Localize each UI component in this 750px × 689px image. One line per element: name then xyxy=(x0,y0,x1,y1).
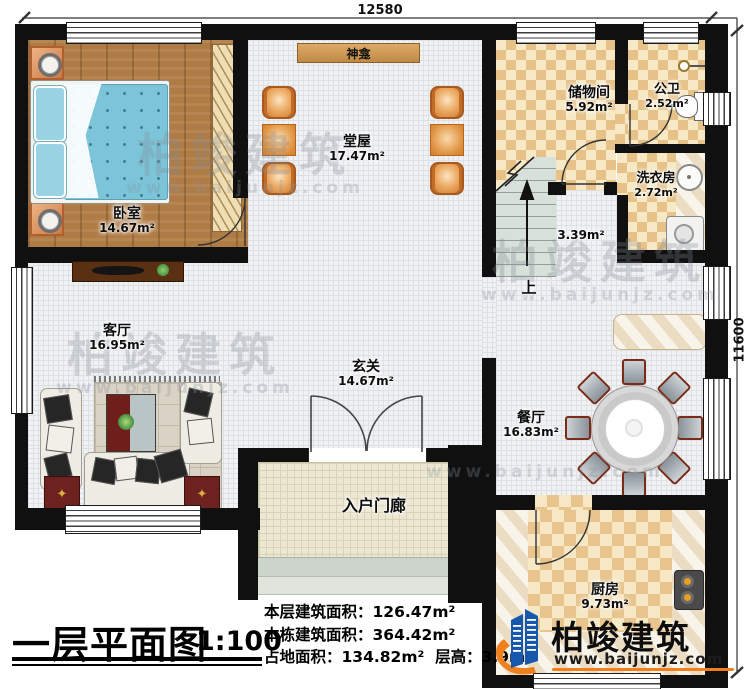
dimension-top: 12580 xyxy=(357,3,402,18)
room-label-foyer: 玄关 14.67m² xyxy=(338,359,394,389)
wall-porch-left xyxy=(238,448,258,600)
wall-dining-kitchen-stub xyxy=(496,495,535,510)
wall-bedroom-right xyxy=(233,24,248,198)
wall-laundry-bottom xyxy=(617,250,710,263)
room-label-bedroom: 卧室 14.67m² xyxy=(99,206,155,236)
window-dining-right-lower xyxy=(703,378,731,480)
window-dining-right-upper xyxy=(703,266,731,320)
stairs-area-label: 3.39m² xyxy=(557,229,604,243)
room-label-laundry: 洗衣房 2.72m² xyxy=(634,172,677,200)
storage-floor xyxy=(496,40,616,190)
wall-bath-laundry-divider xyxy=(615,144,706,153)
sofa-cushion xyxy=(187,418,214,445)
bath-door-gap-floor xyxy=(615,104,628,145)
brand-underline xyxy=(552,668,734,671)
hall-chair xyxy=(262,86,296,119)
lamp-icon xyxy=(38,53,62,77)
room-label-hall: 堂屋 17.47m² xyxy=(329,134,385,164)
sofa-cushion xyxy=(43,394,73,424)
room-label-living: 客厅 16.95m² xyxy=(89,323,145,353)
title-underline-thick xyxy=(12,657,262,661)
bed-pillow xyxy=(34,142,66,198)
dining-chair xyxy=(622,471,646,497)
wall-laundry-left xyxy=(617,195,628,252)
window-storage-top xyxy=(516,22,596,44)
stat-line: 占地面积：134.82m² 层高：3.9m xyxy=(264,646,525,669)
hall-chair xyxy=(430,86,464,119)
stairs-up-label: 上 xyxy=(521,279,536,296)
porch-step-2 xyxy=(256,576,454,595)
shrine-cabinet: 神龛 xyxy=(297,43,420,63)
plant-icon xyxy=(157,264,169,276)
corridor-gap-floor xyxy=(482,277,496,358)
wall-storage-bottom-stub xyxy=(604,182,617,195)
room-label-storage: 储物间 5.92m² xyxy=(565,85,612,115)
faucet-stem xyxy=(690,65,705,67)
stat-line: 本层建筑面积：126.47m² xyxy=(264,601,525,624)
room-label-porch: 入户门廊 xyxy=(342,497,406,515)
room-label-dining: 餐厅 16.83m² xyxy=(503,410,559,440)
dining-chair xyxy=(622,359,646,385)
wall-center-upper xyxy=(482,24,496,277)
dining-table-hub xyxy=(625,419,643,437)
room-label-bath: 公卫 2.52m² xyxy=(645,83,688,111)
wall-storage-bottom-stub xyxy=(548,182,566,195)
dining-sideboard xyxy=(613,314,707,350)
tv-icon xyxy=(92,266,144,275)
faucet-icon xyxy=(678,60,690,72)
star-icon: ✦ xyxy=(57,488,68,501)
wall-dining-kitchen-stub xyxy=(592,495,706,510)
window-living-left xyxy=(11,267,33,414)
window-living-bottom xyxy=(65,505,201,534)
area-statistics: 本层建筑面积：126.47m² 本栋建筑面积：364.42m² 占地面积：134… xyxy=(264,601,525,669)
sofa-cushion xyxy=(46,425,75,454)
title-underline-thin xyxy=(12,664,262,666)
window-kitchen-bottom xyxy=(533,673,661,689)
lamp-icon xyxy=(38,209,62,233)
dimension-right: 11600 xyxy=(733,317,748,362)
kitchen-door-gap-floor xyxy=(535,495,592,510)
porch-step-1 xyxy=(256,557,454,578)
window-bath-right xyxy=(703,92,731,126)
stove-burner xyxy=(681,575,694,588)
window-bedroom-top xyxy=(66,22,202,44)
wall-center-lower xyxy=(482,358,496,510)
hall-chair xyxy=(262,162,296,195)
plant-icon xyxy=(118,414,134,430)
dining-chair xyxy=(565,416,591,440)
stat-line: 本栋建筑面积：364.42m² xyxy=(264,624,525,647)
washing-machine-door xyxy=(674,224,694,244)
bed-pillow xyxy=(34,86,66,142)
dining-chair xyxy=(677,416,703,440)
brand-logo-icon xyxy=(492,607,550,677)
hall-tea-table xyxy=(430,124,464,156)
hall-tea-table xyxy=(262,124,296,156)
laundry-entry-gap-floor xyxy=(617,153,628,195)
wall-storage-bath-divider xyxy=(615,24,628,104)
star-icon: ✦ xyxy=(197,488,208,501)
stove-burner xyxy=(681,591,694,604)
entry-door-threshold xyxy=(308,448,427,462)
floor-plan-canvas: 神龛 ✦ ✦ xyxy=(0,0,750,689)
shrine-label: 神龛 xyxy=(346,45,370,62)
laundry-sink-drain xyxy=(687,175,691,179)
hall-chair xyxy=(430,162,464,195)
room-label-kitchen: 厨房 9.73m² xyxy=(581,582,628,612)
window-bath-top xyxy=(643,22,699,44)
brand-website: www.baijunjz.com xyxy=(554,650,723,668)
